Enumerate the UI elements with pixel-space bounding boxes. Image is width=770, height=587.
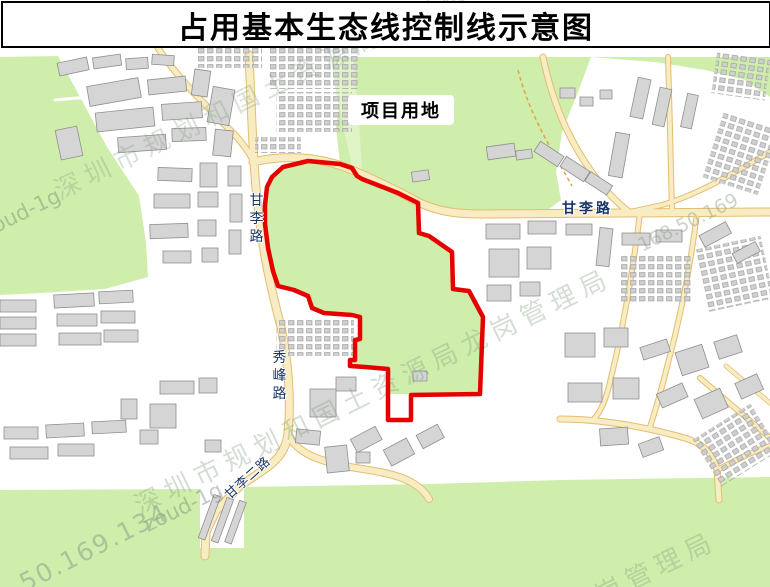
map-title: 占用基本生态线控制线示意图 — [1, 1, 770, 48]
road-label-ganli-vertical: 甘李路 — [249, 192, 264, 246]
map-canvas: 深圳市规划和国土资源局龙岗管理局 深圳市规划和国土资源局龙岗管理局 深圳市规划和… — [0, 0, 770, 587]
project-land-label: 项目用地 — [348, 95, 454, 125]
road-label-xiufeng: 秀峰路 — [272, 349, 287, 403]
planning-map-image: 深圳市规划和国土资源局龙岗管理局 深圳市规划和国土资源局龙岗管理局 深圳市规划和… — [0, 0, 770, 587]
road-label-ganli-horizontal: 甘李路 — [562, 198, 613, 218]
